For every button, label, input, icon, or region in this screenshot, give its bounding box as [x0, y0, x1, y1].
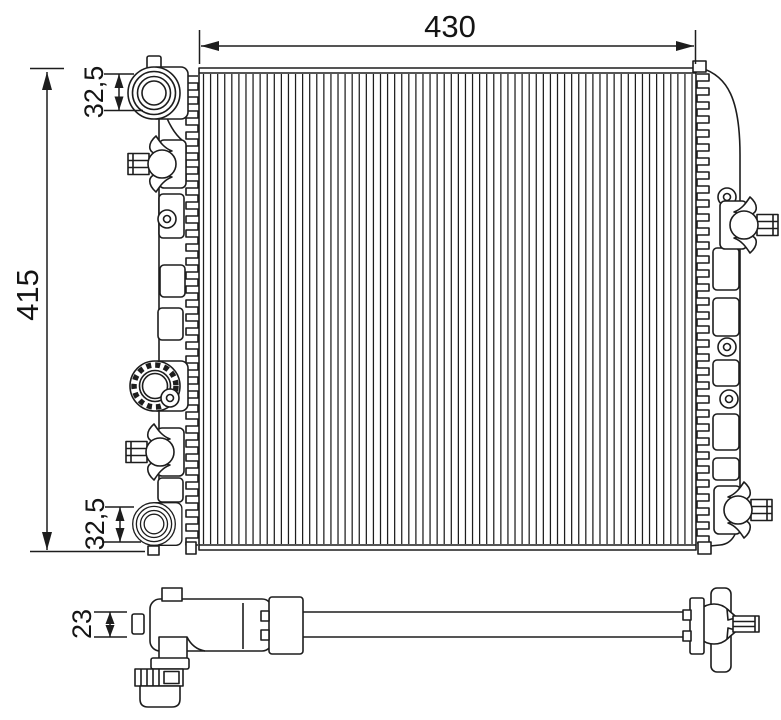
bracket — [713, 248, 739, 290]
crimp-edge-right — [697, 74, 709, 543]
radiator-technical-drawing: 430 415 32,5 32,5 — [0, 0, 781, 720]
dim-port-top-label: 32,5 — [79, 66, 109, 119]
bracket — [713, 360, 739, 386]
dim-overall-width: 430 — [200, 9, 696, 64]
dim-depth-label: 23 — [67, 609, 97, 639]
bracket — [158, 308, 183, 340]
dim-port-bottom: 32,5 — [80, 498, 141, 551]
dim-height-label: 415 — [10, 269, 45, 321]
side-view: 23 — [67, 588, 759, 707]
foot — [698, 542, 711, 554]
side-right-tank — [683, 588, 759, 672]
foot — [148, 546, 159, 555]
hose-clamp — [135, 669, 183, 686]
side-outlet-elbow — [132, 588, 303, 707]
fitting-upper-left — [128, 136, 186, 192]
boss-left — [158, 210, 176, 228]
dim-port-bottom-label: 32,5 — [80, 498, 110, 551]
front-view: 430 415 32,5 32,5 — [10, 9, 778, 555]
boss-right — [720, 390, 738, 408]
hose-end — [140, 686, 180, 707]
fitting-lower-right — [714, 482, 772, 538]
radiator-core — [186, 68, 709, 550]
dim-depth: 23 — [67, 609, 127, 639]
drain-cap-middle — [130, 361, 188, 411]
dim-overall-height: 415 — [10, 69, 145, 552]
bracket — [160, 265, 185, 297]
foot — [186, 542, 196, 554]
dim-width-label: 430 — [424, 9, 476, 44]
boss-right — [718, 338, 736, 356]
hose-collar — [151, 658, 189, 669]
fitting-upper-right — [720, 197, 778, 253]
bracket — [158, 478, 183, 502]
bracket — [713, 458, 739, 480]
bracket — [713, 298, 739, 336]
port-top-left — [128, 56, 188, 119]
bracket — [713, 414, 739, 450]
core-profile — [280, 612, 697, 637]
radiator-technical-drawing-page: 430 415 32,5 32,5 — [0, 0, 781, 720]
fitting-lower-left — [126, 424, 184, 480]
crimp-edge-left — [186, 76, 198, 545]
